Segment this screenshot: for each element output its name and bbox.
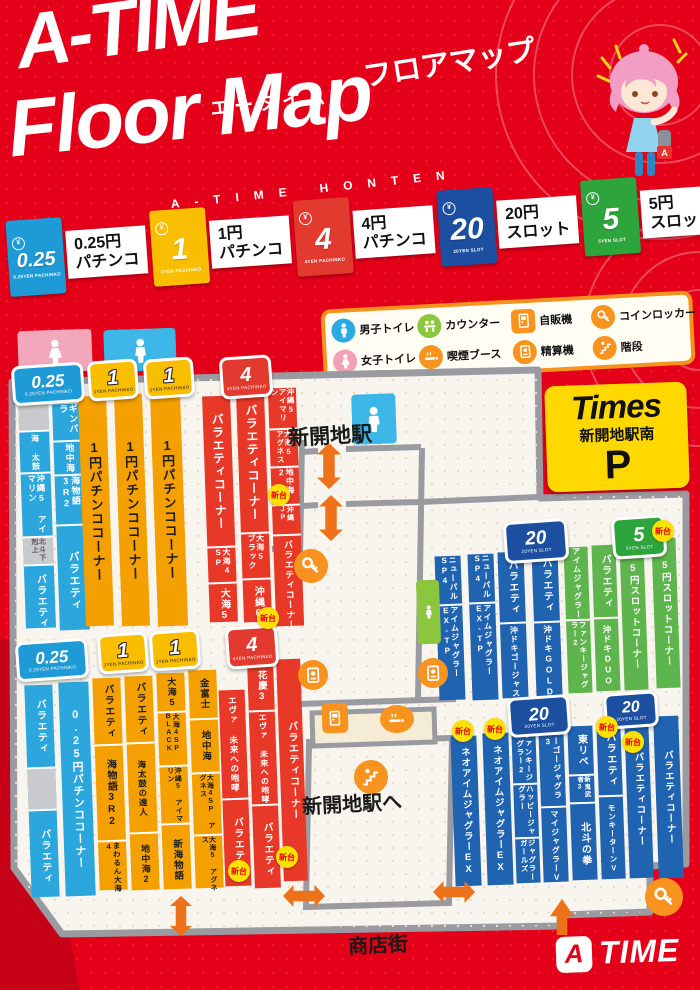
machine-strip: バラエティ沖ドキゴージャス — [497, 552, 528, 699]
new-machine-badge: 新台 — [622, 731, 644, 753]
strip-segment: モンキーターンV — [599, 795, 626, 882]
rate-badge: 11YEN PACHINKO — [87, 358, 140, 401]
machine-name: 大海5 ブラック — [247, 534, 265, 579]
strip-segment: 0.25円パチンココーナー — [58, 682, 95, 897]
machine-name: 1円パチンココーナー — [123, 439, 142, 581]
machine-strip: ファンキージャグラー2ハッピージャグラージャグラーガールズ — [511, 731, 540, 884]
strip-segment: 沖縄JP — [272, 504, 301, 535]
machine-name: ニューパル SP4 — [439, 556, 457, 605]
vending-machine-marker — [321, 703, 348, 734]
strip-segment: 沖ドキDUO — [594, 617, 621, 694]
machine-name: 新鬼武者3 — [575, 776, 590, 802]
machine-name: バラエティ — [34, 698, 46, 753]
machine-strip: 大海5大海4SP BLACK沖縄5 アイマリン新海物語 — [156, 673, 192, 890]
rate-badge-subtext: 1YEN PACHINKO — [94, 386, 134, 394]
machine-name: バラエティコーナー — [282, 540, 295, 630]
stairs-icon — [359, 765, 383, 789]
rate-badge-value: 20 — [528, 704, 549, 723]
machine-name: 大海4SP アグネス — [198, 774, 215, 834]
machine-name: 大海5 — [166, 676, 177, 707]
machine-strip: 東リベ新鬼武者3北斗の拳 — [567, 726, 597, 881]
machine-name: 大海5 アグネス — [201, 836, 218, 894]
locker-icon — [299, 554, 323, 578]
floor-map-poster: A-TIME フロアマップ エータイム Floor Map A-TIME HON… — [0, 0, 700, 990]
machine-strip: バラエティコーナー大海5 ブラック沖縄6 — [236, 392, 272, 623]
strip-segment: ニューパル SP4 — [467, 554, 495, 603]
smoking-icon — [385, 709, 409, 729]
strip-segment: ゴーゴージャグラー3 — [538, 728, 566, 807]
strip-segment: 海 太鼓 — [19, 430, 50, 473]
rate-badge: 11YEN PACHINKO — [97, 631, 150, 674]
machine-name: 大海5 — [218, 588, 230, 622]
strip-segment: アイムジャグラー EX-TP — [436, 604, 465, 703]
machine-strip: ネオアイムジャグラーEX — [482, 733, 513, 886]
machine-strip: ネオアイムジャグラーEX — [450, 736, 481, 887]
strip-segment: 大海5 — [209, 581, 239, 626]
machine-strip: 0.25円パチンココーナー — [58, 682, 95, 897]
street-label: 商店街 — [347, 927, 408, 959]
machine-name: ゴーゴージャグラー3 — [542, 728, 561, 807]
strip-segment: 大海5 — [156, 673, 185, 712]
machine-name: バラエティコーナー — [632, 752, 645, 847]
strip-segment: ジャグラーガールズ — [515, 837, 541, 888]
rate-badge-subtext: 4YEN PACHINKO — [227, 383, 267, 391]
rate-badge-subtext: 20YEN SLOT — [521, 547, 552, 554]
strip-segment: バラエティ — [252, 804, 281, 893]
strip-segment: バラエティコーナー — [653, 716, 684, 879]
machine-strip: バラエティバラエティ — [24, 685, 59, 898]
counter-marker — [416, 580, 441, 645]
machine-name: 沖ドキDUO — [602, 625, 613, 687]
machine-name: バラエティ — [101, 683, 113, 738]
strip-segment: 東リベ — [567, 726, 594, 775]
strip-segment: バラエティコーナー — [236, 392, 269, 533]
machine-name: バラエティ — [603, 731, 615, 786]
new-machine-badge: 新台 — [276, 846, 298, 868]
strip-segment: バラエティ — [124, 676, 154, 743]
rate-badge: 11YEN PACHINKO — [149, 628, 202, 671]
machine-name: バラエティ — [66, 551, 80, 611]
machine-name: バラエティ — [38, 828, 50, 883]
machine-name: エヴァ 未来への咆哮 — [258, 712, 270, 803]
machine-name: バラエティ — [260, 821, 272, 876]
smoking-booth-marker — [380, 704, 415, 733]
rate-badge: 0.250.25YEN PACHINKO — [15, 638, 90, 683]
rate-badge-subtext: 20YEN SLOT — [616, 714, 647, 721]
rate-badge-value: 4 — [240, 364, 252, 385]
machine-name: ハッピージャグラー — [517, 785, 535, 838]
machine-name: 地中海 — [199, 730, 210, 762]
strip-segment: 地中海 — [190, 718, 220, 773]
strip-segment: 沖縄5 アイマリン — [21, 472, 53, 537]
machine-name: ファンキージャグラー2 — [570, 621, 588, 696]
machine-strip: バラエティ沖ドキGOLD — [531, 549, 562, 698]
machine-name: ニューパル SP4 — [472, 554, 490, 603]
machine-strip: バラエティコーナー — [653, 716, 684, 879]
rate-badge-value: 1 — [163, 365, 175, 386]
rate-badge-value: 5 — [633, 524, 645, 545]
machine-name: バラエティコーナー — [210, 412, 227, 529]
machine-name: 海 太鼓 — [30, 433, 40, 470]
machine-name: バラエティコーナー — [662, 750, 675, 845]
machine-name: 花慶3 — [255, 669, 266, 702]
machine-name: バラエティ — [505, 559, 517, 614]
rate-badge-subtext: 1YEN PACHINKO — [104, 659, 144, 667]
machine-name: アイムジャグラー EX-TP — [441, 606, 461, 703]
male-icon — [420, 590, 437, 634]
machine-strip: ゴーゴージャグラー3マイジャグラーV — [538, 728, 568, 883]
payout-icon — [302, 664, 323, 685]
machine-name: 沖縄5 アイマリン — [166, 767, 183, 823]
strip-segment: 北斗の拳 — [570, 802, 598, 885]
rate-badge-value: 1 — [107, 367, 119, 388]
machine-name: まわるん大海4 — [104, 842, 122, 895]
machine-name: ギンパラ — [58, 404, 78, 441]
machine-name: 地中海 — [64, 443, 74, 473]
machine-name: 海太鼓の達人 — [137, 759, 148, 816]
machine-name: エヴァ 未来への咆哮 — [227, 696, 239, 793]
rate-badge-subtext: 20YEN SLOT — [524, 721, 555, 728]
strip-segment: ネオアイムジャグラーEX — [450, 736, 481, 887]
strip-segment: 海物語3R2 — [95, 744, 126, 841]
rate-badge-subtext: 4YEN PACHINKO — [233, 653, 273, 661]
machine-strip: 1円パチンココーナー — [150, 392, 188, 627]
machine-name: 沖ドキGOLD — [543, 625, 554, 698]
payout-icon — [422, 662, 443, 683]
rate-badge: 44YEN PACHINKO — [225, 624, 280, 670]
strip-segment: マイジャグラーV — [541, 806, 569, 885]
strip-segment: アイムジャグラー — [563, 547, 589, 620]
new-machine-badge: 新台 — [484, 718, 506, 740]
machine-name: ファンキージャグラー2 — [515, 731, 533, 784]
brand-logo-mark: A — [555, 935, 592, 972]
strip-segment: 1円パチンココーナー — [150, 392, 188, 627]
machine-strip: アイムジャグラーファンキージャグラー2 — [563, 547, 592, 694]
strip-segment: 沖縄5 アイマリン — [159, 765, 189, 824]
machine-name: 0.25円パチンココーナー — [68, 709, 85, 869]
machine-name: 北斗の拳 — [578, 822, 590, 866]
strip-segment: ネオアイムジャグラーEX — [482, 733, 513, 886]
strip-segment: 地中海2 — [130, 831, 160, 894]
machine-name: アイムジャグラー — [571, 547, 582, 619]
strip-segment: 大海5 ブラック — [241, 531, 271, 578]
machine-name: 北斗下剋上 — [30, 538, 46, 564]
strip-segment: バラエティ — [24, 685, 55, 768]
strip-segment: ファンキージャグラー2 — [566, 619, 593, 696]
machine-strip: 5円スロットコーナー — [651, 538, 680, 689]
machine-name: バラエティ — [599, 553, 611, 608]
machine-strip: 1円パチンココーナー — [114, 394, 150, 627]
strip-segment: エヴァ 未来への咆哮 — [249, 710, 278, 805]
rate-badge-value: 1 — [169, 637, 181, 658]
parking-mark: P — [604, 444, 632, 485]
rate-badge-value: 1 — [117, 640, 129, 661]
machine-name: 海物語3R2 — [104, 758, 117, 827]
new-machine-badge: 新台 — [596, 716, 618, 738]
strip-segment: まわるん大海4 — [98, 839, 128, 894]
strip-segment: 金富士 — [188, 670, 218, 719]
coin-locker-marker — [644, 877, 683, 916]
machine-strip: バラエティ海太鼓の達人地中海2 — [124, 676, 159, 891]
machine-name: 大海4 SP — [213, 548, 231, 583]
strip-segment: バラエティ — [92, 678, 122, 745]
brand-logo-text: TIME — [598, 932, 680, 972]
entrance-arrow — [170, 896, 192, 936]
entrance-arrow — [283, 885, 325, 907]
strip-segment: 大海4SP アグネス — [192, 772, 222, 835]
strip-segment: 大海4SP BLACK — [158, 711, 188, 766]
machine-name: 海物語3R2 — [60, 476, 81, 525]
new-machine-badge: 新台 — [652, 520, 674, 542]
machine-name: バラエティ — [539, 557, 551, 612]
machine-strip: 海 太鼓沖縄5 アイマリン北斗下剋上バラエティ — [18, 400, 56, 629]
machine-strip: ニューパル SP4アイムジャグラー EX-TP — [467, 554, 498, 701]
machine-name: ネオアイムジャグラーEX — [491, 744, 505, 873]
strip-segment: 沖ドキゴージャス — [500, 622, 529, 701]
to-station-label: 新開地駅へ — [301, 785, 402, 819]
machine-strip: 5円スロットコーナー — [619, 542, 648, 691]
rate-badge: 44YEN PACHINKO — [219, 354, 274, 400]
machine-name: 新海物語 — [171, 839, 182, 881]
machine-name: マイジャグラーV — [549, 809, 560, 882]
machine-strip: バラエティ海物語3R2まわるん大海4 — [92, 678, 127, 891]
rate-badge: 2020YEN SLOT — [503, 518, 570, 564]
machine-name: バラエティ — [34, 573, 46, 628]
payout-machine-marker — [297, 659, 328, 690]
strip-segment: 1円パチンココーナー — [114, 394, 150, 627]
parking-brand: Times — [570, 388, 661, 424]
brand-logo: A TIME — [555, 932, 680, 973]
rate-badge-value: 20 — [525, 528, 547, 548]
machine-name: 沖縄5 アイマリン — [27, 474, 47, 537]
entrance-arrow — [550, 899, 574, 935]
strip-segment: 新海物語 — [161, 822, 191, 895]
machine-name: 大海4SP BLACK — [164, 713, 180, 765]
rate-badge: 11YEN PACHINKO — [143, 356, 196, 399]
strip-segment: アイムジャグラー EX-TP — [469, 602, 498, 703]
machine-name: 東リベ — [575, 733, 587, 766]
rate-badge: 2020YEN SLOT — [507, 694, 572, 738]
vending-icon — [326, 707, 344, 728]
machine-name: 沖縄JP — [279, 506, 295, 534]
entrance-arrow — [319, 495, 343, 541]
new-machine-badge: 新台 — [228, 860, 250, 882]
strip-segment: 5円スロットコーナー — [619, 542, 648, 691]
new-machine-badge: 新台 — [257, 607, 279, 629]
coin-locker-marker — [293, 548, 328, 583]
strip-segment: 5円スロットコーナー — [651, 538, 680, 689]
strip-segment: ファンキージャグラー2 — [511, 731, 537, 784]
strip-segment: 沖ドキGOLD — [534, 621, 563, 700]
machine-name: 金富士 — [198, 678, 209, 710]
machine-name: アイムジャグラー EX-TP — [474, 604, 494, 703]
strip-segment — [27, 767, 56, 810]
machine-name: バラエティコーナー — [285, 720, 299, 819]
strip-segment: バラエティ — [24, 563, 56, 636]
strip-segment: エヴァ 未来への咆哮 — [219, 690, 249, 799]
rate-badge-subtext: 1YEN PACHINKO — [156, 656, 196, 664]
machine-name: 地中海2 — [139, 843, 150, 884]
strip-segment: 大海4 SP — [207, 545, 236, 582]
strip-segment: 海太鼓の達人 — [127, 742, 158, 833]
machine-name: 5円スロットコーナー — [659, 560, 673, 667]
machine-name: 沖ドキゴージャス — [509, 626, 520, 698]
machine-name: バラエティ — [133, 681, 145, 736]
new-machine-badge: 新台 — [268, 484, 290, 506]
parking-sign: Times 新開地駅南 P — [544, 382, 690, 493]
machine-name: モンキーターンV — [607, 804, 617, 874]
strip-segment: 新鬼武者3 — [569, 774, 595, 803]
machine-name: バラエティコーナー — [244, 403, 261, 520]
machine-name: 1円パチンココーナー — [160, 438, 179, 580]
strip-segment: バラエティ — [29, 809, 60, 902]
machine-name: ネオアイムジャグラーEX — [459, 746, 473, 875]
machine-strip: エヴァ 未来への咆哮バラエティ — [219, 690, 252, 887]
machine-strip: バラエティコーナー大海4 SP大海5 — [202, 396, 238, 623]
rate-badge: 0.250.25YEN PACHINKO — [11, 362, 86, 407]
map-layer: 新開地駅 新開地駅へ 商店街 海 太鼓沖縄5 アイマリン北斗下剋上バラエティギン… — [0, 0, 700, 990]
strip-segment: バラエティコーナー — [202, 396, 235, 547]
machine-strip: バラエティ沖ドキDUO — [591, 545, 620, 692]
machine-strip: バラエティモンキーターンV — [596, 723, 625, 880]
strip-segment: 大海5 アグネス — [194, 833, 224, 894]
locker-icon — [651, 884, 678, 911]
rate-badge-value: 20 — [621, 699, 640, 716]
machine-name: ジャグラーガールズ — [519, 839, 536, 888]
rate-badge-value: 4 — [246, 634, 258, 655]
strip-segment: 花慶3 — [247, 662, 275, 711]
new-machine-badge: 新台 — [452, 720, 474, 742]
rate-badge-subtext: 1YEN PACHINKO — [150, 384, 190, 392]
machine-name: 1円パチンココーナー — [87, 440, 106, 582]
machine-name: 5円スロットコーナー — [627, 563, 641, 670]
strip-segment: 北斗下剋上 — [23, 535, 54, 564]
rate-badge-subtext: 5YEN SLOT — [626, 544, 654, 551]
strip-segment: ハッピージャグラー — [513, 783, 539, 838]
